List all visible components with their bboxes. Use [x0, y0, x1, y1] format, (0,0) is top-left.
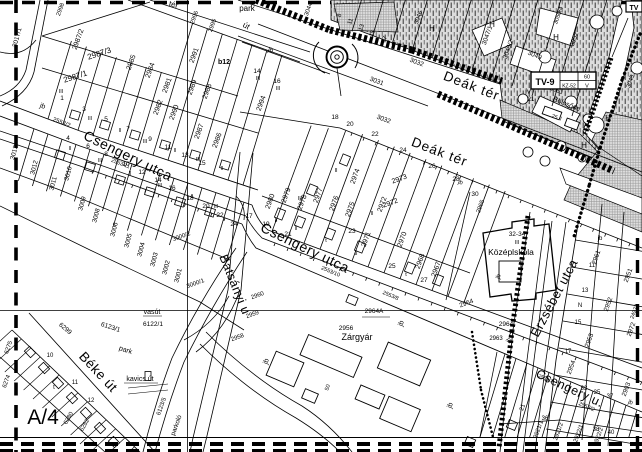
svg-text:park: park [239, 4, 256, 13]
svg-text:35: 35 [594, 390, 601, 396]
svg-text:ll: ll [371, 211, 373, 217]
svg-text:b12: b12 [218, 59, 230, 66]
svg-text:2964A: 2964A [365, 308, 384, 315]
svg-text:9: 9 [148, 136, 152, 143]
svg-text:2956: 2956 [339, 325, 354, 332]
svg-text:kavics út: kavics út [126, 376, 153, 383]
svg-text:23: 23 [348, 228, 356, 235]
svg-text:18: 18 [331, 114, 339, 121]
svg-text:IV: IV [525, 90, 531, 96]
svg-text:16: 16 [168, 185, 176, 192]
svg-text:24: 24 [399, 147, 407, 154]
svg-text:19: 19 [262, 221, 270, 228]
svg-text:10: 10 [47, 353, 54, 359]
svg-text:jb: jb [597, 236, 603, 242]
svg-text:H: H [489, 20, 495, 29]
svg-text:20: 20 [202, 203, 210, 210]
svg-text:ll: ll [119, 128, 121, 134]
svg-text:22: 22 [216, 212, 224, 219]
svg-text:II: II [354, 251, 358, 257]
svg-text:25: 25 [388, 263, 396, 270]
svg-text:13: 13 [582, 288, 589, 294]
svg-text:H: H [553, 33, 559, 42]
svg-text:27: 27 [420, 277, 428, 284]
svg-text:vasút: vasút [144, 309, 161, 316]
svg-text:4: 4 [66, 135, 70, 142]
svg-text:2963: 2963 [489, 336, 503, 342]
svg-text:37: 37 [607, 394, 614, 400]
svg-text:III: III [515, 240, 520, 246]
svg-text:20: 20 [346, 121, 354, 128]
svg-text:6122/1: 6122/1 [143, 321, 163, 328]
svg-text:14: 14 [253, 68, 261, 75]
svg-text:II: II [334, 168, 338, 174]
svg-text:10: 10 [122, 161, 130, 168]
svg-text:7: 7 [126, 126, 130, 133]
svg-text:KZ-52: KZ-52 [562, 84, 576, 90]
svg-text:36: 36 [542, 416, 549, 422]
svg-text:16: 16 [273, 78, 281, 85]
svg-text:3: 3 [82, 106, 86, 113]
svg-text:12: 12 [88, 398, 95, 404]
svg-text:6: 6 [86, 143, 90, 150]
svg-text:21: 21 [284, 231, 292, 238]
svg-text:33: 33 [581, 386, 588, 392]
svg-text:lll: lll [88, 116, 92, 122]
svg-text:III: III [276, 86, 281, 92]
svg-text:15: 15 [575, 320, 582, 326]
svg-text:H: H [429, 24, 435, 33]
svg-text:III: III [59, 89, 64, 95]
svg-text:A/4: A/4 [27, 406, 59, 429]
svg-text:11: 11 [72, 380, 79, 386]
svg-text:60: 60 [584, 75, 590, 81]
svg-text:8: 8 [104, 151, 108, 158]
svg-text:11: 11 [589, 263, 596, 269]
svg-text:V: V [585, 84, 589, 90]
svg-text:ll: ll [174, 148, 176, 154]
svg-text:Zárgyár: Zárgyár [341, 332, 372, 342]
svg-text:TV-9: TV-9 [535, 77, 554, 87]
svg-text:40: 40 [608, 430, 615, 436]
svg-text:II: II [274, 218, 278, 224]
svg-text:13: 13 [181, 152, 189, 159]
svg-text:12: 12 [138, 169, 146, 176]
svg-text:Középlskola: Középlskola [488, 247, 534, 257]
svg-text:N: N [578, 303, 582, 309]
svg-text:14: 14 [154, 177, 162, 184]
svg-text:ll: ll [221, 166, 223, 172]
svg-text:18: 18 [186, 195, 194, 202]
svg-text:ll: ll [295, 226, 297, 232]
svg-text:III: III [143, 139, 148, 145]
svg-text:III: III [298, 196, 303, 202]
svg-text:III: III [256, 76, 261, 82]
svg-text:ll: ll [69, 146, 71, 152]
svg-text:26: 26 [428, 163, 436, 170]
svg-text:21: 21 [528, 97, 535, 103]
svg-text:1: 1 [60, 95, 64, 102]
svg-text:38: 38 [593, 427, 600, 433]
svg-text:17: 17 [245, 213, 253, 220]
svg-text:30: 30 [471, 191, 479, 198]
svg-text:17: 17 [565, 349, 572, 355]
svg-text:22: 22 [371, 131, 379, 138]
svg-text:TV: TV [630, 5, 639, 12]
